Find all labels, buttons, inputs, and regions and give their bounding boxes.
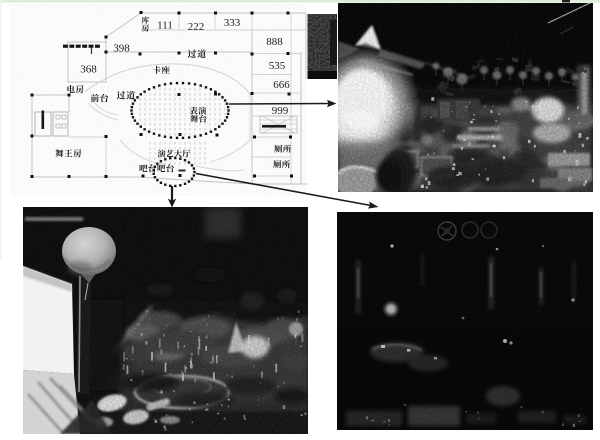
svg-text:535: 535 [269, 60, 286, 72]
svg-text:368: 368 [80, 64, 97, 76]
svg-text:999: 999 [272, 105, 289, 117]
svg-text:333: 333 [224, 17, 241, 29]
svg-text:666: 666 [273, 79, 290, 91]
svg-text:398: 398 [113, 43, 130, 55]
svg-text:111: 111 [157, 20, 173, 32]
svg-text:222: 222 [188, 21, 205, 33]
svg-text:888: 888 [266, 36, 283, 48]
